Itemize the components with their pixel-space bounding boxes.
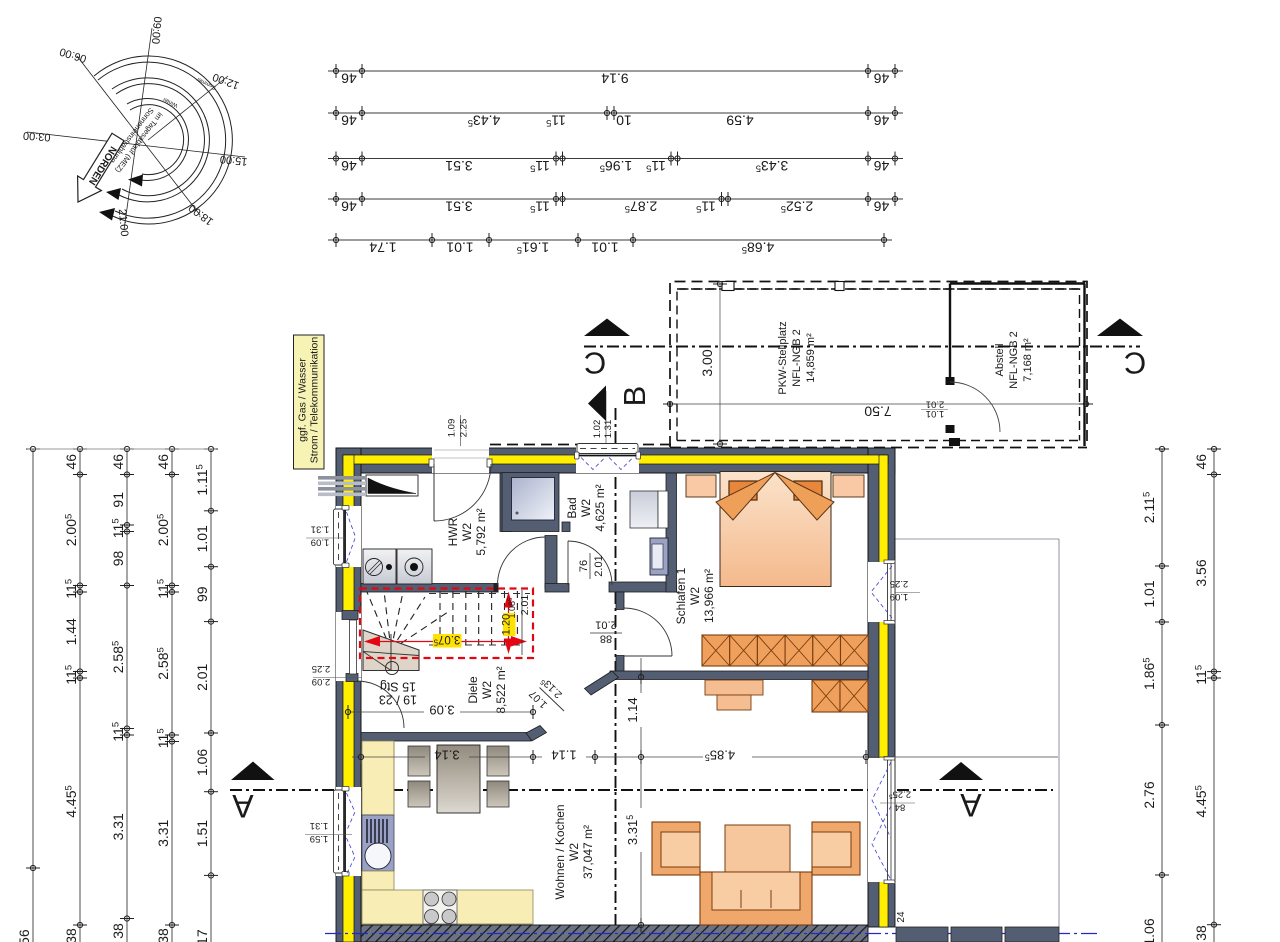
svg-text:88: 88 bbox=[600, 633, 612, 645]
svg-text:1.44: 1.44 bbox=[63, 618, 79, 645]
svg-text:1.01: 1.01 bbox=[926, 408, 945, 419]
svg-text:38: 38 bbox=[1193, 925, 1209, 941]
svg-text:1.01: 1.01 bbox=[1141, 580, 1157, 607]
svg-text:Strom / Telekommunikation: Strom / Telekommunikation bbox=[309, 337, 321, 464]
svg-text:3.00: 3.00 bbox=[699, 349, 715, 376]
svg-text:1.09: 1.09 bbox=[890, 591, 909, 602]
svg-text:1.01: 1.01 bbox=[591, 240, 618, 256]
svg-text:A: A bbox=[960, 787, 982, 823]
svg-text:1.14: 1.14 bbox=[625, 697, 640, 722]
svg-text:W2: W2 bbox=[688, 587, 702, 605]
svg-text:2.25: 2.25 bbox=[459, 419, 470, 438]
svg-text:46: 46 bbox=[1193, 454, 1209, 470]
svg-text:21:00: 21:00 bbox=[116, 209, 130, 237]
svg-text:1.09: 1.09 bbox=[447, 419, 458, 438]
svg-text:2.25: 2.25 bbox=[890, 578, 909, 589]
svg-text:NFL-NGB 2: NFL-NGB 2 bbox=[791, 329, 803, 386]
svg-text:2.01: 2.01 bbox=[593, 555, 605, 576]
svg-text:46: 46 bbox=[63, 454, 79, 470]
svg-text:7,168 m²: 7,168 m² bbox=[1022, 338, 1034, 382]
svg-text:A: A bbox=[232, 788, 254, 824]
svg-text:1.31: 1.31 bbox=[310, 820, 329, 831]
svg-text:2.01: 2.01 bbox=[194, 663, 210, 690]
svg-text:1.02: 1.02 bbox=[592, 420, 603, 439]
svg-text:3.14: 3.14 bbox=[434, 748, 459, 763]
svg-text:1.59: 1.59 bbox=[310, 833, 329, 844]
svg-text:NFL-NGB 2: NFL-NGB 2 bbox=[1008, 331, 1020, 388]
svg-text:38: 38 bbox=[110, 923, 126, 939]
svg-text:1.74: 1.74 bbox=[369, 240, 396, 256]
svg-text:91: 91 bbox=[110, 492, 126, 508]
svg-text:46: 46 bbox=[341, 113, 357, 129]
svg-text:4,625 m²: 4,625 m² bbox=[593, 484, 607, 531]
svg-text:5,792 m²: 5,792 m² bbox=[474, 508, 488, 555]
svg-text:1.17: 1.17 bbox=[194, 929, 210, 942]
svg-text:1.31: 1.31 bbox=[311, 524, 330, 535]
svg-text:1.01: 1.01 bbox=[446, 240, 473, 256]
svg-text:19 / 23: 19 / 23 bbox=[379, 693, 417, 707]
svg-text:ggf. Gas / Wasser: ggf. Gas / Wasser bbox=[297, 358, 309, 442]
svg-text:46: 46 bbox=[874, 71, 890, 87]
svg-text:3.31: 3.31 bbox=[155, 819, 171, 846]
svg-text:B: B bbox=[617, 386, 652, 407]
svg-text:Abstell: Abstell bbox=[994, 343, 1006, 376]
svg-text:2.01: 2.01 bbox=[519, 595, 531, 616]
svg-text:46: 46 bbox=[874, 199, 890, 215]
svg-text:W2: W2 bbox=[567, 843, 581, 861]
svg-text:84: 84 bbox=[895, 802, 906, 813]
svg-text:C: C bbox=[1124, 346, 1146, 381]
svg-text:24: 24 bbox=[896, 911, 907, 923]
svg-text:46: 46 bbox=[341, 158, 357, 174]
svg-text:C: C bbox=[584, 346, 606, 381]
svg-text:3.56: 3.56 bbox=[1193, 559, 1209, 586]
svg-text:15 Stg: 15 Stg bbox=[380, 680, 416, 694]
svg-text:10: 10 bbox=[616, 113, 632, 129]
svg-text:3.09: 3.09 bbox=[429, 703, 454, 718]
svg-text:1.01: 1.01 bbox=[194, 525, 210, 552]
svg-text:9.14: 9.14 bbox=[601, 71, 628, 87]
svg-text:03:00: 03:00 bbox=[23, 129, 51, 143]
svg-text:37,047 m²: 37,047 m² bbox=[581, 825, 595, 879]
svg-text:W2: W2 bbox=[460, 523, 474, 541]
svg-text:99: 99 bbox=[194, 586, 210, 602]
svg-text:Bad: Bad bbox=[565, 497, 579, 518]
svg-text:2.09: 2.09 bbox=[312, 676, 331, 687]
svg-text:09:00: 09:00 bbox=[149, 16, 163, 44]
svg-text:3.31: 3.31 bbox=[110, 813, 126, 840]
svg-text:46: 46 bbox=[110, 454, 126, 470]
svg-text:8,522 m²: 8,522 m² bbox=[494, 666, 508, 713]
svg-text:Diele: Diele bbox=[466, 676, 480, 704]
svg-text:2.76: 2.76 bbox=[1141, 781, 1157, 808]
svg-text:46: 46 bbox=[155, 454, 171, 470]
svg-text:3.51: 3.51 bbox=[445, 158, 472, 174]
svg-text:1.09: 1.09 bbox=[311, 537, 330, 548]
svg-text:7.50: 7.50 bbox=[864, 404, 891, 420]
svg-text:Wohnen / Kochen: Wohnen / Kochen bbox=[553, 804, 567, 899]
svg-text:3.51: 3.51 bbox=[445, 199, 472, 215]
svg-text:14,859 m²: 14,859 m² bbox=[805, 333, 817, 383]
svg-text:1.14: 1.14 bbox=[551, 748, 576, 763]
svg-text:38: 38 bbox=[63, 928, 79, 942]
svg-text:13,966 m²: 13,966 m² bbox=[702, 569, 716, 623]
svg-text:76: 76 bbox=[578, 560, 590, 572]
svg-text:Schlafen 1: Schlafen 1 bbox=[674, 567, 688, 624]
svg-text:1.51: 1.51 bbox=[194, 820, 210, 847]
svg-text:W2: W2 bbox=[480, 681, 494, 699]
svg-text:2.25: 2.25 bbox=[312, 663, 331, 674]
svg-text:2.01: 2.01 bbox=[595, 619, 616, 631]
svg-text:46: 46 bbox=[341, 71, 357, 87]
svg-text:4.59: 4.59 bbox=[726, 113, 753, 129]
svg-text:46: 46 bbox=[874, 113, 890, 129]
svg-text:1.31: 1.31 bbox=[603, 420, 614, 439]
svg-text:1.06: 1.06 bbox=[194, 749, 210, 776]
svg-text:1.06: 1.06 bbox=[1141, 918, 1157, 942]
svg-text:98: 98 bbox=[110, 551, 126, 567]
svg-text:7.56: 7.56 bbox=[16, 929, 32, 942]
svg-text:38: 38 bbox=[155, 928, 171, 942]
svg-text:PKW-Stellplatz: PKW-Stellplatz bbox=[777, 321, 789, 394]
svg-text:HWR: HWR bbox=[446, 517, 460, 546]
svg-text:2.01: 2.01 bbox=[926, 399, 945, 410]
svg-text:46: 46 bbox=[341, 199, 357, 215]
svg-text:W2: W2 bbox=[579, 499, 593, 517]
svg-text:46: 46 bbox=[874, 158, 890, 174]
